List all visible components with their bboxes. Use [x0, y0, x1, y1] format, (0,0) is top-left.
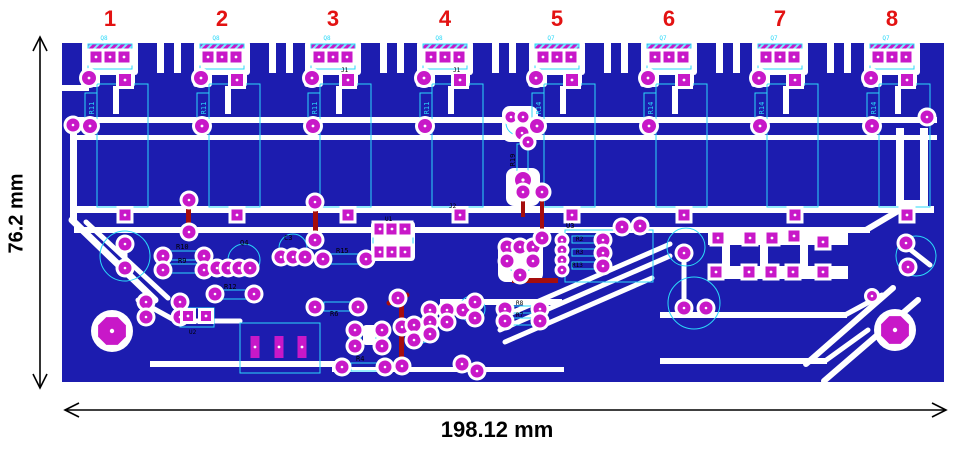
pad-hole — [205, 315, 208, 318]
pad-hole — [188, 199, 191, 202]
resistor-ref-label: R14 — [870, 102, 878, 115]
pad-hole — [793, 235, 796, 238]
pad-hole — [758, 77, 761, 80]
pad-hole — [162, 269, 165, 272]
pad-hole — [715, 271, 718, 274]
trace — [380, 43, 387, 73]
pad-hole — [532, 260, 535, 263]
pad-hole — [249, 267, 252, 270]
pad-hole — [314, 239, 317, 242]
pad-hole — [404, 251, 407, 254]
pad-hole — [476, 370, 479, 373]
pcb-board: R19 U3 R2 R3 R13 R10 R9 Q4 C3 R15 R12 R6… — [62, 28, 944, 382]
trace — [716, 43, 723, 73]
pad-hole — [354, 345, 357, 348]
pad-hole — [278, 346, 281, 349]
pad-hole — [522, 191, 525, 194]
pad-hole — [253, 293, 256, 296]
pad-hole — [683, 79, 686, 82]
pad-hole — [201, 125, 204, 128]
ref-label-u3: U3 — [566, 222, 574, 230]
pad-hole — [539, 320, 542, 323]
trace — [621, 43, 628, 73]
pad-hole — [527, 141, 530, 144]
pad-hole — [216, 267, 219, 270]
pad-hole — [683, 214, 686, 217]
pad-hole — [424, 125, 427, 128]
pad-hole — [792, 271, 795, 274]
pad-hole — [602, 239, 605, 242]
pad-hole — [870, 77, 873, 80]
pad-hole — [571, 214, 574, 217]
pad-hole — [561, 269, 564, 272]
pad-hole — [794, 214, 797, 217]
pad-hole — [381, 345, 384, 348]
channel-number-6: 6 — [663, 6, 675, 32]
pad-hole — [354, 329, 357, 332]
transistor-ref-label: Q7 — [659, 35, 667, 42]
pad-hole — [413, 324, 416, 327]
pad-hole — [474, 317, 477, 320]
trace — [269, 43, 276, 73]
channel-number-2: 2 — [216, 6, 228, 32]
pad-hole — [519, 274, 522, 277]
transistor-ref-label: Q7 — [770, 35, 778, 42]
trace — [827, 43, 834, 73]
pad-hole — [401, 326, 404, 329]
pad-hole — [318, 56, 321, 59]
pad-hole — [765, 56, 768, 59]
channel-number-1: 1 — [104, 6, 116, 32]
resistor-ref-label: R14 — [758, 102, 766, 115]
pad-hole — [430, 56, 433, 59]
pad-hole — [905, 56, 908, 59]
pad-hole — [379, 228, 382, 231]
ref-label-r19: R19 — [509, 154, 517, 167]
pad-hole — [332, 56, 335, 59]
pad-hole — [561, 239, 564, 242]
trace — [70, 128, 77, 222]
pad-hole — [322, 258, 325, 261]
trace — [509, 43, 516, 73]
pad-hole — [793, 56, 796, 59]
trace — [672, 86, 678, 114]
pad-hole — [907, 266, 910, 269]
pad-hole — [311, 77, 314, 80]
transistor-ref-label: Q7 — [882, 35, 890, 42]
ref-label-r12: R12 — [224, 283, 237, 291]
trace — [397, 43, 404, 73]
ref-label-r3: R3 — [576, 249, 584, 256]
trace — [174, 43, 181, 73]
trace — [733, 43, 740, 73]
trace — [286, 43, 293, 73]
pad-hole — [381, 329, 384, 332]
pad-hole — [822, 241, 825, 244]
transistor-ref-label: Q8 — [435, 35, 443, 42]
pad-hole — [462, 309, 465, 312]
pad-hole — [88, 77, 91, 80]
pad-hole — [391, 251, 394, 254]
pad-hole — [254, 346, 257, 349]
pad-hole — [404, 228, 407, 231]
pad-hole — [794, 79, 797, 82]
trace — [225, 86, 231, 114]
pad-hole — [779, 56, 782, 59]
channel-number-7: 7 — [774, 6, 786, 32]
pad-hole — [510, 116, 513, 119]
pad-hole — [357, 306, 360, 309]
pad-hole — [906, 214, 909, 217]
pcb-layout-screenshot: R19 U3 R2 R3 R13 R10 R9 Q4 C3 R15 R12 R6… — [0, 0, 977, 456]
trace — [157, 43, 164, 73]
pad-hole — [238, 267, 241, 270]
pad-hole — [124, 243, 127, 246]
pad-hole — [539, 308, 542, 311]
trace — [604, 43, 611, 73]
pad-hole — [346, 56, 349, 59]
pad-hole — [521, 132, 524, 135]
pad-hole — [236, 79, 239, 82]
pad-hole — [905, 242, 908, 245]
pad-hole — [145, 316, 148, 319]
pad-hole — [187, 315, 190, 318]
ref-label-r13: R13 — [572, 262, 583, 269]
pad-hole — [541, 237, 544, 240]
pad-hole — [312, 125, 315, 128]
pad-hole — [504, 308, 507, 311]
trace — [336, 86, 342, 114]
ref-label-r7: R7 — [516, 312, 524, 319]
pad-hole — [683, 307, 686, 310]
pad-hole — [423, 77, 426, 80]
ref-label-r4: R4 — [356, 355, 364, 363]
pad-hole — [72, 124, 75, 127]
pad-hole — [871, 295, 874, 298]
trace — [560, 86, 566, 114]
channel-number-3: 3 — [327, 6, 339, 32]
pad-hole — [683, 252, 686, 255]
pad-hole — [292, 256, 295, 259]
mounting-hole-center — [110, 329, 114, 333]
ref-label-r10: R10 — [176, 243, 189, 251]
pad-hole — [227, 267, 230, 270]
pad-hole — [89, 125, 92, 128]
pad-hole — [314, 201, 317, 204]
pad-hole — [771, 237, 774, 240]
pad-hole — [429, 333, 432, 336]
pad-hole — [214, 293, 217, 296]
pad-hole — [877, 56, 880, 59]
trace — [896, 128, 904, 206]
pad-hole — [203, 255, 206, 258]
trace — [895, 86, 901, 114]
transistor-ref-label: Q8 — [212, 35, 220, 42]
pad-hole — [519, 246, 522, 249]
pad-hole — [556, 56, 559, 59]
ref-label-r15: R15 — [336, 247, 349, 255]
pad-hole — [570, 56, 573, 59]
pad-hole — [365, 258, 368, 261]
pad-hole — [401, 365, 404, 368]
resistor-ref-label: R11 — [88, 102, 96, 115]
channel-number-4: 4 — [439, 6, 451, 32]
board-width-label: 198.12 mm — [377, 417, 617, 443]
pad-hole — [179, 301, 182, 304]
trace — [844, 43, 851, 73]
pad-hole — [221, 56, 224, 59]
pad-hole — [822, 271, 825, 274]
pad-hole — [347, 214, 350, 217]
resistor-ref-label: R11 — [200, 102, 208, 115]
pad-hole — [474, 301, 477, 304]
pad-hole — [561, 259, 564, 262]
trace — [150, 361, 335, 367]
trace — [660, 358, 827, 364]
pad-hole — [207, 56, 210, 59]
trace — [492, 43, 499, 73]
trace — [920, 128, 928, 206]
pad-hole — [532, 246, 535, 249]
pad-hole — [561, 249, 564, 252]
pad-hole — [347, 79, 350, 82]
pad-hole — [123, 56, 126, 59]
ref-label-j2: J2 — [449, 203, 457, 210]
pad-hole — [522, 116, 525, 119]
pad-hole — [397, 297, 400, 300]
pad-hole — [461, 363, 464, 366]
ref-label-r8: R8 — [516, 300, 524, 307]
pad-hole — [891, 56, 894, 59]
pad-hole — [770, 271, 773, 274]
resistor-ref-label: R14 — [535, 102, 543, 115]
pad-hole — [459, 214, 462, 217]
pad-hole — [301, 346, 304, 349]
pad-hole — [391, 228, 394, 231]
board-height-label: 76.2 mm — [6, 154, 29, 274]
pad-hole — [542, 56, 545, 59]
pad-hole — [536, 125, 539, 128]
pad-hole — [429, 321, 432, 324]
trace — [113, 86, 119, 114]
height-dimension-arrow — [24, 30, 60, 394]
trace — [783, 86, 789, 114]
pad-hole — [124, 79, 127, 82]
pad-hole — [717, 237, 720, 240]
resistor-ref-label: R11 — [423, 102, 431, 115]
pad-hole — [429, 309, 432, 312]
pad-hole — [602, 252, 605, 255]
ref-label-q4: Q4 — [240, 239, 248, 247]
transistor-ref-label: Q7 — [547, 35, 555, 42]
ref-label-c3: C3 — [284, 234, 292, 242]
mounting-hole-center — [893, 328, 897, 332]
pad-hole — [203, 269, 206, 272]
pad-hole — [280, 256, 283, 259]
pad-hole — [621, 226, 624, 229]
channel-number-8: 8 — [886, 6, 898, 32]
ref-label-u1: U1 — [385, 216, 393, 223]
pad-hole — [341, 366, 344, 369]
pad-hole — [413, 339, 416, 342]
ref-label-u2: U2 — [189, 329, 197, 336]
pad-hole — [668, 56, 671, 59]
pad-hole — [444, 56, 447, 59]
transistor-ref-label: Q8 — [323, 35, 331, 42]
pad-hole — [379, 251, 382, 254]
pad-hole — [124, 267, 127, 270]
pad-hole — [200, 77, 203, 80]
pad-hole — [95, 56, 98, 59]
pad-hole — [236, 214, 239, 217]
pad-hole — [506, 246, 509, 249]
pad-hole — [748, 271, 751, 274]
pad-hole — [571, 79, 574, 82]
pad-hole — [521, 178, 524, 181]
pad-hole — [188, 231, 191, 234]
pad-hole — [504, 320, 507, 323]
pad-hole — [648, 125, 651, 128]
pad-hole — [682, 56, 685, 59]
ref-label-r2: R2 — [576, 236, 584, 243]
pad-hole — [541, 191, 544, 194]
pad-hole — [145, 301, 148, 304]
pad-hole — [906, 79, 909, 82]
pad-hole — [647, 77, 650, 80]
pad-hole — [384, 366, 387, 369]
ref-label-j1-b: J1 — [453, 67, 461, 74]
trace — [448, 86, 454, 114]
pad-hole — [458, 56, 461, 59]
channel-number-5: 5 — [551, 6, 563, 32]
pad-hole — [654, 56, 657, 59]
resistor-ref-label: R11 — [311, 102, 319, 115]
pad-hole — [109, 56, 112, 59]
pad-hole — [162, 255, 165, 258]
pad-hole — [506, 260, 509, 263]
pad-hole — [871, 125, 874, 128]
ref-label-r9: R9 — [178, 257, 186, 265]
pad-hole — [304, 256, 307, 259]
pad-hole — [602, 265, 605, 268]
pad-hole — [926, 116, 929, 119]
pad-hole — [535, 77, 538, 80]
pad-hole — [749, 237, 752, 240]
pad-hole — [124, 214, 127, 217]
transistor-ref-label: Q8 — [100, 35, 108, 42]
pad-hole — [314, 306, 317, 309]
pad-hole — [235, 56, 238, 59]
ref-label-r6: R6 — [330, 310, 338, 318]
pad-hole — [446, 309, 449, 312]
pad-hole — [705, 307, 708, 310]
ref-label-j1-a: J1 — [341, 67, 349, 74]
resistor-ref-label: R14 — [647, 102, 655, 115]
pad-hole — [759, 125, 762, 128]
pad-hole — [446, 321, 449, 324]
pad-hole — [459, 79, 462, 82]
pad-hole — [639, 225, 642, 228]
